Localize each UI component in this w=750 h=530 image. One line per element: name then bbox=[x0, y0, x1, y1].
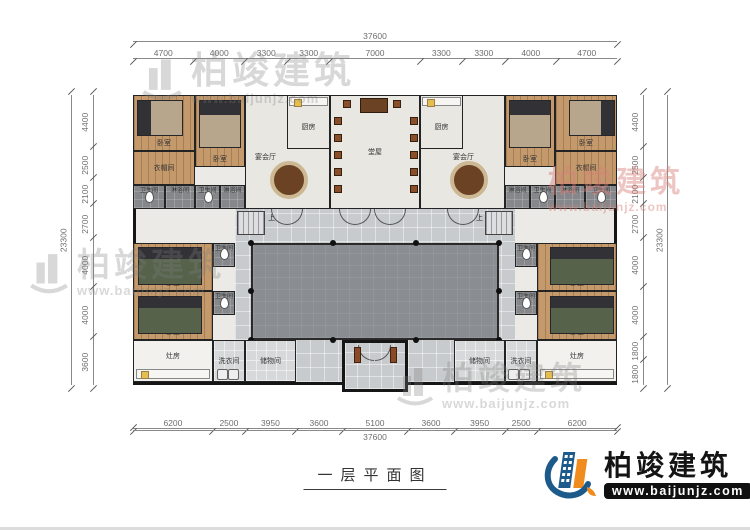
dim-top-total: 37600 bbox=[133, 26, 617, 42]
dim-value: 1800 bbox=[628, 363, 643, 385]
dim-value: 3600 bbox=[78, 340, 93, 385]
column-dot bbox=[496, 240, 502, 246]
toilet-fixture bbox=[539, 191, 548, 203]
chair bbox=[410, 185, 418, 193]
bed bbox=[569, 100, 615, 136]
dim-value: 6200 bbox=[133, 413, 213, 428]
chair bbox=[334, 117, 342, 125]
dim-value: 1800 bbox=[628, 340, 643, 362]
toilet-fixture bbox=[220, 297, 229, 309]
dim-value: 4000 bbox=[78, 290, 93, 340]
hall-table bbox=[360, 98, 388, 113]
stove-counter bbox=[136, 369, 210, 379]
floor-plan-page: 37600 4700 4000 3300 3300 7000 3300 3300… bbox=[0, 0, 750, 530]
brand-logo: 柏竣建筑 www.baijunjz.com bbox=[542, 447, 750, 503]
chair bbox=[410, 117, 418, 125]
toilet-fixture bbox=[145, 191, 154, 203]
dim-right-segments: 4400 2500 2100 2700 4000 4000 1800 1800 bbox=[628, 95, 644, 385]
dim-value: 23300 bbox=[56, 95, 71, 385]
column-dot bbox=[330, 240, 336, 246]
dim-value: 37600 bbox=[133, 26, 617, 41]
chair bbox=[410, 151, 418, 159]
dim-value: 2100 bbox=[78, 181, 93, 207]
kitchen-counter bbox=[422, 97, 461, 106]
bed bbox=[137, 100, 183, 136]
door-post bbox=[390, 347, 397, 363]
dim-value: 3300 bbox=[463, 43, 505, 58]
chair bbox=[334, 168, 342, 176]
column-dot bbox=[413, 240, 419, 246]
washer-icon bbox=[508, 369, 519, 380]
toilet-fixture bbox=[220, 248, 229, 260]
dim-value: 37600 bbox=[133, 431, 617, 446]
dim-value: 4400 bbox=[78, 95, 93, 150]
watermark-url: www.baijunjz.com bbox=[442, 397, 586, 410]
chair bbox=[410, 134, 418, 142]
bed bbox=[138, 247, 202, 285]
bed bbox=[550, 247, 614, 285]
stove-icon bbox=[141, 371, 149, 379]
dim-value: 3300 bbox=[287, 43, 329, 58]
door-arc bbox=[375, 345, 391, 361]
dim-value: 4700 bbox=[557, 43, 618, 58]
dim-value: 2100 bbox=[628, 181, 643, 207]
corridor-front-left bbox=[296, 340, 342, 382]
stove-icon bbox=[427, 99, 435, 107]
bed bbox=[199, 100, 241, 148]
stove-icon bbox=[294, 99, 302, 107]
bed bbox=[509, 100, 551, 148]
dim-value: 4400 bbox=[628, 95, 643, 150]
column-dot bbox=[496, 288, 502, 294]
dim-bottom-total: 37600 bbox=[133, 430, 617, 446]
toilet-fixture bbox=[597, 191, 606, 203]
stove-counter bbox=[540, 369, 614, 379]
dim-bottom-segments: 6200 2500 3950 3600 5100 3600 3950 2500 … bbox=[133, 413, 617, 429]
courtyard bbox=[251, 243, 499, 340]
stairs-left bbox=[237, 211, 265, 235]
dim-value: 3950 bbox=[454, 413, 505, 428]
stairs-right bbox=[485, 211, 513, 235]
room-shower-1: 淋浴间 bbox=[165, 185, 195, 209]
room-cloakroom-right: 衣帽间 bbox=[555, 151, 617, 185]
dim-value: 3300 bbox=[420, 43, 462, 58]
brand-url: www.baijunjz.com bbox=[604, 483, 750, 499]
round-dining-table bbox=[450, 161, 488, 199]
room-cloakroom-left: 衣帽间 bbox=[133, 151, 195, 185]
dim-value: 6200 bbox=[537, 413, 617, 428]
kitchen-counter bbox=[289, 97, 328, 106]
dim-left-total: 23300 bbox=[56, 95, 72, 385]
chair bbox=[393, 100, 401, 108]
dim-value: 4000 bbox=[505, 43, 556, 58]
dim-value: 2500 bbox=[505, 413, 537, 428]
room-storage-left: 储物间 bbox=[245, 340, 296, 382]
brand-name: 柏竣建筑 bbox=[604, 451, 750, 480]
dim-value: 2500 bbox=[628, 150, 643, 181]
dim-value: 4000 bbox=[628, 241, 643, 291]
dim-value: 3950 bbox=[245, 413, 296, 428]
washer-icon bbox=[217, 369, 228, 380]
chair bbox=[334, 134, 342, 142]
dim-right-total: 23300 bbox=[652, 95, 668, 385]
dim-top-segments: 4700 4000 3300 3300 7000 3300 3300 4000 … bbox=[133, 43, 617, 59]
room-shower-2: 淋浴间 bbox=[220, 185, 245, 209]
dim-value: 2500 bbox=[78, 150, 93, 181]
room-shower-4: 淋浴间 bbox=[555, 185, 585, 209]
round-dining-table bbox=[270, 161, 308, 199]
dim-value: 5100 bbox=[342, 413, 408, 428]
dim-value: 7000 bbox=[330, 43, 420, 58]
dim-value: 3600 bbox=[296, 413, 342, 428]
bed bbox=[138, 296, 202, 334]
room-storage-right: 储物间 bbox=[454, 340, 505, 382]
dim-value: 2700 bbox=[628, 207, 643, 241]
stove-icon bbox=[545, 371, 553, 379]
column-dot bbox=[248, 288, 254, 294]
column-dot bbox=[330, 337, 336, 343]
dim-value: 2500 bbox=[213, 413, 245, 428]
corridor-front-right bbox=[408, 340, 454, 382]
column-dot bbox=[413, 337, 419, 343]
dim-value: 3300 bbox=[245, 43, 287, 58]
dim-value: 4700 bbox=[133, 43, 194, 58]
chair bbox=[343, 100, 351, 108]
chair bbox=[410, 168, 418, 176]
drawing-title: 一层平面图 bbox=[303, 464, 446, 490]
room-shower-3: 淋浴间 bbox=[505, 185, 530, 209]
toilet-fixture bbox=[522, 248, 531, 260]
toilet-fixture bbox=[204, 191, 213, 203]
dim-value: 4000 bbox=[628, 290, 643, 340]
bed bbox=[550, 296, 614, 334]
door-post bbox=[354, 347, 361, 363]
washer-icon bbox=[228, 369, 239, 380]
dim-value: 23300 bbox=[652, 95, 667, 385]
dim-value: 2700 bbox=[78, 207, 93, 241]
washer-icon bbox=[519, 369, 530, 380]
toilet-fixture bbox=[522, 297, 531, 309]
dim-value: 4000 bbox=[194, 43, 245, 58]
dim-value: 4000 bbox=[78, 241, 93, 291]
brand-logo-icon bbox=[542, 447, 598, 503]
dim-left-segments: 4400 2500 2100 2700 4000 4000 3600 bbox=[78, 95, 94, 385]
column-dot bbox=[248, 240, 254, 246]
chair bbox=[334, 151, 342, 159]
chair bbox=[334, 185, 342, 193]
dim-value: 3600 bbox=[408, 413, 454, 428]
floor-plan: 上 上 卧室 卧室 衣帽间 卫生间 淋浴间 卫生间 淋浴间 宴会厅 厨房 堂屋 … bbox=[133, 95, 617, 385]
entrance-porch bbox=[342, 340, 408, 392]
